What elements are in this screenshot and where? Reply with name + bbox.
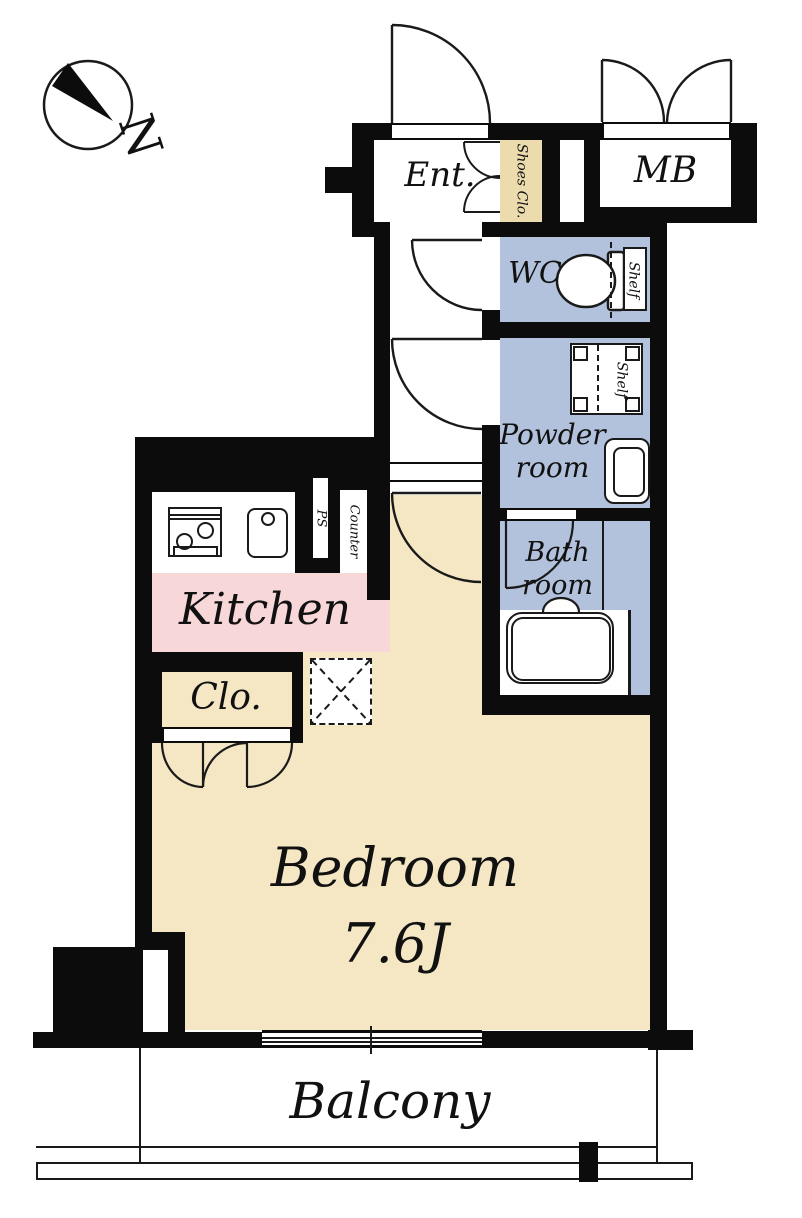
counter-label: Counter	[346, 505, 361, 559]
bedroom-label: Bedroom 7.6J	[190, 830, 600, 982]
entrance-threshold	[390, 123, 490, 140]
counter-label-wrap: Counter	[340, 490, 367, 573]
wc-label: WC	[500, 256, 570, 291]
burner-right	[197, 522, 214, 539]
bathtub	[506, 612, 614, 684]
wall-end-block	[648, 1030, 693, 1050]
balcony-label: Balcony	[235, 1072, 545, 1130]
powder-room-label-line1: Powder	[495, 418, 610, 451]
closet-track	[162, 727, 292, 743]
window-rail-2	[262, 1041, 482, 1043]
powder-shelf-label: Shelf	[613, 362, 629, 399]
compass-needle	[52, 63, 113, 121]
fridge-space	[310, 658, 372, 725]
grill	[173, 546, 218, 557]
powder-door-arc	[392, 339, 482, 429]
powder-sink	[604, 438, 650, 504]
stove-top-line2	[170, 518, 220, 520]
mb-threshold	[602, 122, 731, 140]
kitchen-sink	[247, 508, 288, 558]
pillar	[53, 947, 143, 1032]
floor-plan: N Ent. Shoes Clo. MB WC Shelf Shelf Powd…	[0, 0, 802, 1218]
bathtub-inner	[511, 617, 611, 681]
wall-counter-right	[367, 492, 390, 600]
bedroom-strip	[390, 495, 482, 652]
wc-shelf-label: Shelf	[625, 262, 641, 299]
washer-corner-bl	[573, 397, 588, 412]
hall-threshold	[390, 462, 482, 482]
powder-room-label: Powder room	[495, 418, 610, 484]
wall-lowleft	[168, 932, 185, 1047]
wall-closet-top	[135, 652, 303, 672]
mb-door-arc-right	[667, 60, 731, 122]
compass-n-label: N	[104, 99, 176, 173]
wall-notch	[325, 167, 352, 193]
bath-door-opening	[505, 508, 578, 521]
shoes-closet-label: Shoes Clo.	[513, 144, 529, 219]
entrance-label: Ent.	[385, 155, 495, 195]
wall-shoes-right	[542, 140, 560, 222]
balcony-rail-line	[36, 1146, 658, 1148]
wall-closet-right	[292, 652, 303, 743]
entrance-door-arc	[392, 25, 490, 123]
powder-shelf-label-wrap: Shelf	[608, 348, 634, 412]
faucet	[261, 512, 275, 526]
wall-closet-left	[135, 672, 162, 743]
wall-bath-bottom	[482, 695, 667, 715]
ps-label: PS	[313, 509, 328, 527]
stove-top-line	[170, 514, 220, 516]
wc-shelf-label-wrap: Shelf	[620, 250, 646, 310]
wall-wc-bottom	[482, 322, 667, 338]
washer-corner-tl	[573, 346, 588, 361]
bedroom-window	[262, 1030, 482, 1048]
powder-room-label-line2: room	[495, 451, 610, 484]
stove	[168, 507, 222, 557]
bedroom-label-line2: 7.6J	[190, 906, 600, 982]
wall-right-main	[650, 223, 667, 1032]
wc-door-arc	[412, 240, 482, 310]
wall-bottom-left	[33, 1032, 262, 1048]
bath-room-label-line1: Bath	[505, 536, 610, 569]
wall-wc-top	[482, 222, 667, 237]
window-center-tick	[370, 1026, 372, 1054]
tub-area-edge	[628, 610, 631, 695]
wall-mb-bottom	[584, 207, 757, 223]
wall-hall-left	[374, 222, 390, 437]
railing-post	[579, 1142, 598, 1182]
closet-label: Clo.	[166, 670, 286, 725]
bedroom-label-line1: Bedroom	[190, 830, 600, 906]
wall-bottom-right	[482, 1031, 648, 1048]
powder-sink-basin	[613, 447, 645, 497]
bath-room-label: Bath room	[505, 536, 610, 602]
mb-door-arc-left	[602, 60, 664, 122]
ps-label-wrap: PS	[311, 478, 330, 558]
wall-left-top	[352, 123, 374, 237]
wall-kitchen-top	[135, 437, 390, 492]
meter-box-label: MB	[600, 150, 731, 191]
window-rail-1	[262, 1037, 482, 1039]
bath-room-label-line2: room	[505, 569, 610, 602]
shoes-closet-label-wrap: Shoes Clo.	[500, 140, 542, 222]
kitchen-label: Kitchen	[160, 584, 370, 635]
